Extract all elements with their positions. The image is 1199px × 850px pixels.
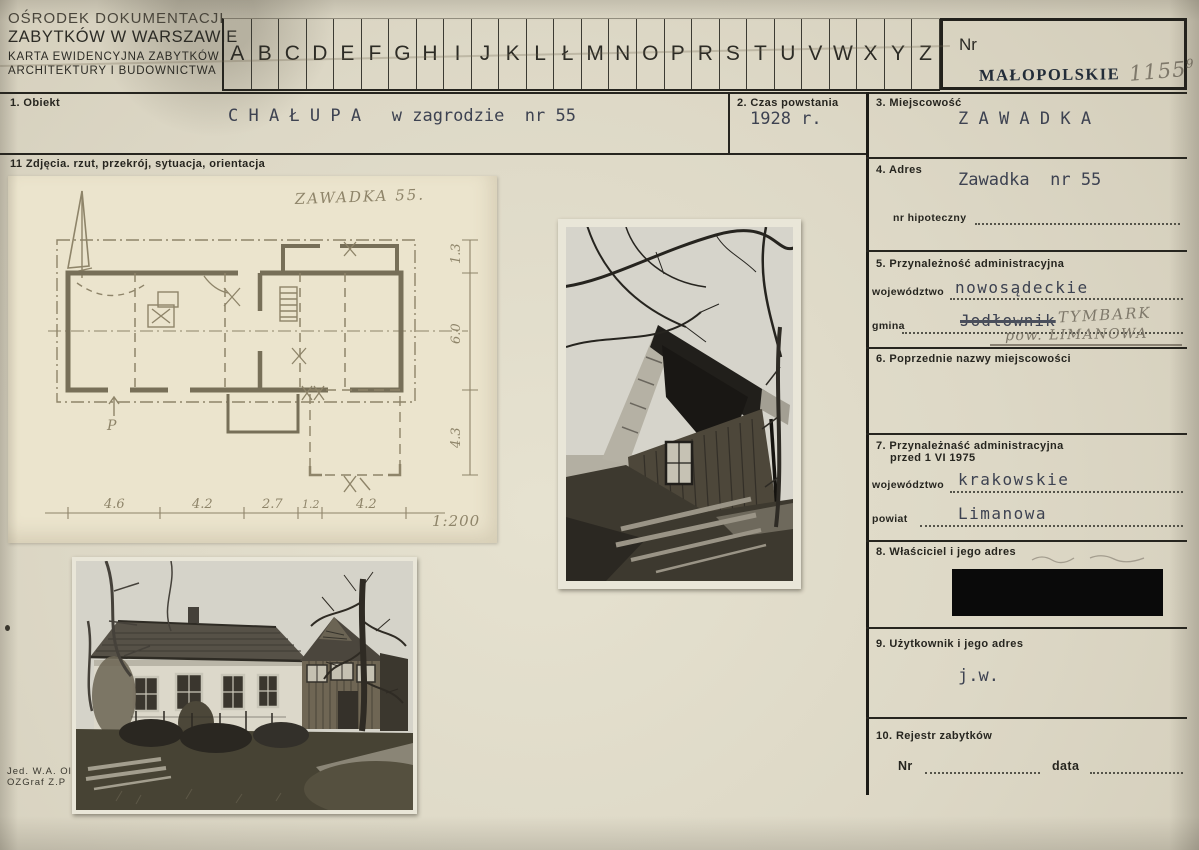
imprint-line1: Jed. W.A. Ol: [7, 766, 72, 777]
plan-scale: 1:200: [432, 512, 480, 530]
plan-dim-right-2: 4.3: [449, 427, 464, 449]
wojewodztwo-label-s5: województwo: [872, 286, 944, 298]
alphabet-cell: C: [279, 19, 307, 89]
inventory-number-box: Nr MAŁOPOLSKIE 11559: [940, 18, 1187, 90]
section1-label: 1. Obiekt: [10, 97, 60, 109]
gmina-handwritten-powiat: pow. LIMANOWA: [1005, 326, 1148, 344]
photo-gable-house-image: [566, 227, 793, 581]
pencil-underline: [990, 344, 1182, 346]
alphabet-cell: G: [389, 19, 417, 89]
alphabet-cell: S: [720, 19, 748, 89]
plan-entrance-label: P: [106, 418, 117, 434]
divider-below-s6: [866, 433, 1187, 435]
section5-label: 5. Przynależność administracyjna: [876, 258, 1064, 270]
alphabet-cell: X: [857, 19, 885, 89]
alphabet-cell: P: [665, 19, 693, 89]
divider-below-s9: [866, 717, 1187, 719]
section6-label: 6. Poprzednie nazwy miejscowości: [876, 353, 1071, 365]
printer-imprint: Jed. W.A. Ol OZGraf Z.P: [7, 766, 72, 788]
card-title-line2: ARCHITEKTURY I BUDOWNICTWA: [8, 65, 220, 77]
plan-dim-bottom-2: 2.7: [261, 497, 283, 512]
miejscowosc-value: Z A W A D K A: [958, 109, 1091, 129]
alphabet-cell: U: [775, 19, 803, 89]
divider-below-s8: [866, 627, 1187, 629]
inventory-number: 11559: [1128, 56, 1196, 86]
alphabet-cell: A: [224, 19, 252, 89]
hipoteczny-label: nr hipoteczny: [893, 212, 966, 224]
redaction-bar: [952, 569, 1163, 616]
alphabet-cell: R: [692, 19, 720, 89]
divider-s1-s2: [728, 92, 730, 153]
floor-plan-drawing: ZAWADKA 55. P 1.3 6.0 4.3 4.6 4.2 2.7 1.…: [8, 176, 497, 543]
section9-label: 9. Użytkownik i jego adres: [876, 638, 1023, 650]
powiat-value: Limanowa: [958, 504, 1047, 523]
section3-label: 3. Miejscowość: [876, 97, 962, 109]
section8-label: 8. Właściciel i jego adres: [876, 546, 1016, 558]
uzytkownik-value: j.w.: [958, 666, 999, 686]
floor-plan-svg: ZAWADKA 55. P 1.3 6.0 4.3 4.6 4.2 2.7 1.…: [8, 176, 497, 543]
divider-below-s7: [866, 540, 1187, 542]
alphabet-cell: E: [334, 19, 362, 89]
alphabet-cell: F: [362, 19, 390, 89]
section11-label: 11 Zdjęcia. rzut, przekrój, sytuacja, or…: [10, 158, 265, 170]
alphabet-cell: I: [444, 19, 472, 89]
rejestr-data-line: [1090, 771, 1183, 774]
section4-label: 4. Adres: [876, 164, 922, 176]
divider-below-s5: [866, 347, 1187, 349]
hipoteczny-line: [975, 222, 1180, 225]
wojewodztwo-value-s7: krakowskie: [958, 470, 1069, 489]
wojewodztwo-line-s5: [950, 297, 1183, 300]
header-divider: [0, 92, 1187, 94]
gmina-label: gmina: [872, 320, 905, 332]
photo-house-garden-image: [76, 561, 413, 810]
alphabet-cell: W: [830, 19, 858, 89]
powiat-line: [920, 524, 1183, 527]
plan-dim-bottom-1: 4.2: [191, 497, 213, 512]
plan-title: ZAWADKA 55.: [294, 185, 426, 208]
divider-below-s1: [0, 153, 866, 155]
alphabet-cell: D: [307, 19, 335, 89]
org-line1: OŚRODEK DOKUMENTACJI: [8, 10, 220, 27]
wojewodztwo-line-s7: [950, 490, 1183, 493]
object-value: C H A Ł U P A w zagrodzie nr 55: [228, 106, 576, 126]
voivodeship-stamp: MAŁOPOLSKIE: [979, 64, 1120, 85]
section7-label: 7. Przynależnaść administracyjna: [876, 440, 1064, 452]
czas-value: 1928 r.: [750, 109, 822, 129]
section2-label: 2. Czas powstania: [737, 97, 839, 109]
photo-house-garden: [72, 557, 417, 814]
alphabet-cell: Z: [912, 19, 940, 89]
divider-below-s4: [866, 250, 1187, 252]
inventory-number-suffix: 9: [1185, 56, 1195, 71]
plan-dim-right-0: 1.3: [449, 243, 464, 264]
photo-gable-house: [558, 219, 801, 589]
alphabet-cell: B: [252, 19, 280, 89]
ink-dot: [5, 625, 10, 631]
adres-value: Zawadka nr 55: [958, 170, 1101, 190]
plan-dim-bottom-3: 1.2: [302, 498, 320, 511]
rejestr-nr-line: [925, 771, 1040, 774]
record-card: OŚRODEK DOKUMENTACJI ZABYTKÓW W WARSZAWI…: [0, 0, 1199, 850]
section7-label2: przed 1 VI 1975: [890, 452, 976, 464]
rejestr-nr-label: Nr: [898, 759, 913, 773]
powiat-label: powiat: [872, 513, 908, 525]
plan-dim-bottom-4: 4.2: [355, 497, 377, 512]
right-column-border: [866, 92, 869, 795]
gmina-handwritten-value: TYMBARK: [1058, 304, 1152, 327]
imprint-line2: OZGraf Z.P: [7, 777, 72, 788]
alphabet-cell: V: [802, 19, 830, 89]
alphabet-cell: H: [417, 19, 445, 89]
north-arrow-icon: [68, 191, 92, 278]
org-line2: ZABYTKÓW W WARSZAWIE: [8, 28, 220, 47]
header-org-block: OŚRODEK DOKUMENTACJI ZABYTKÓW W WARSZAWI…: [8, 10, 220, 77]
divider-below-s3: [866, 157, 1187, 159]
wojewodztwo-value-s5: nowosądeckie: [955, 278, 1089, 297]
alphabet-cell: O: [637, 19, 665, 89]
plan-dim-bottom-0: 4.6: [103, 497, 125, 512]
alphabet-cell: Y: [885, 19, 913, 89]
inventory-number-main: 1155: [1128, 57, 1187, 86]
alphabet-cell: T: [747, 19, 775, 89]
rejestr-data-label: data: [1052, 759, 1079, 773]
section10-label: 10. Rejestr zabytków: [876, 730, 992, 742]
wojewodztwo-label-s7: województwo: [872, 479, 944, 491]
nr-label: Nr: [959, 35, 977, 55]
plan-dim-right-1: 6.0: [449, 323, 464, 344]
pencil-squiggle: [1030, 552, 1170, 566]
